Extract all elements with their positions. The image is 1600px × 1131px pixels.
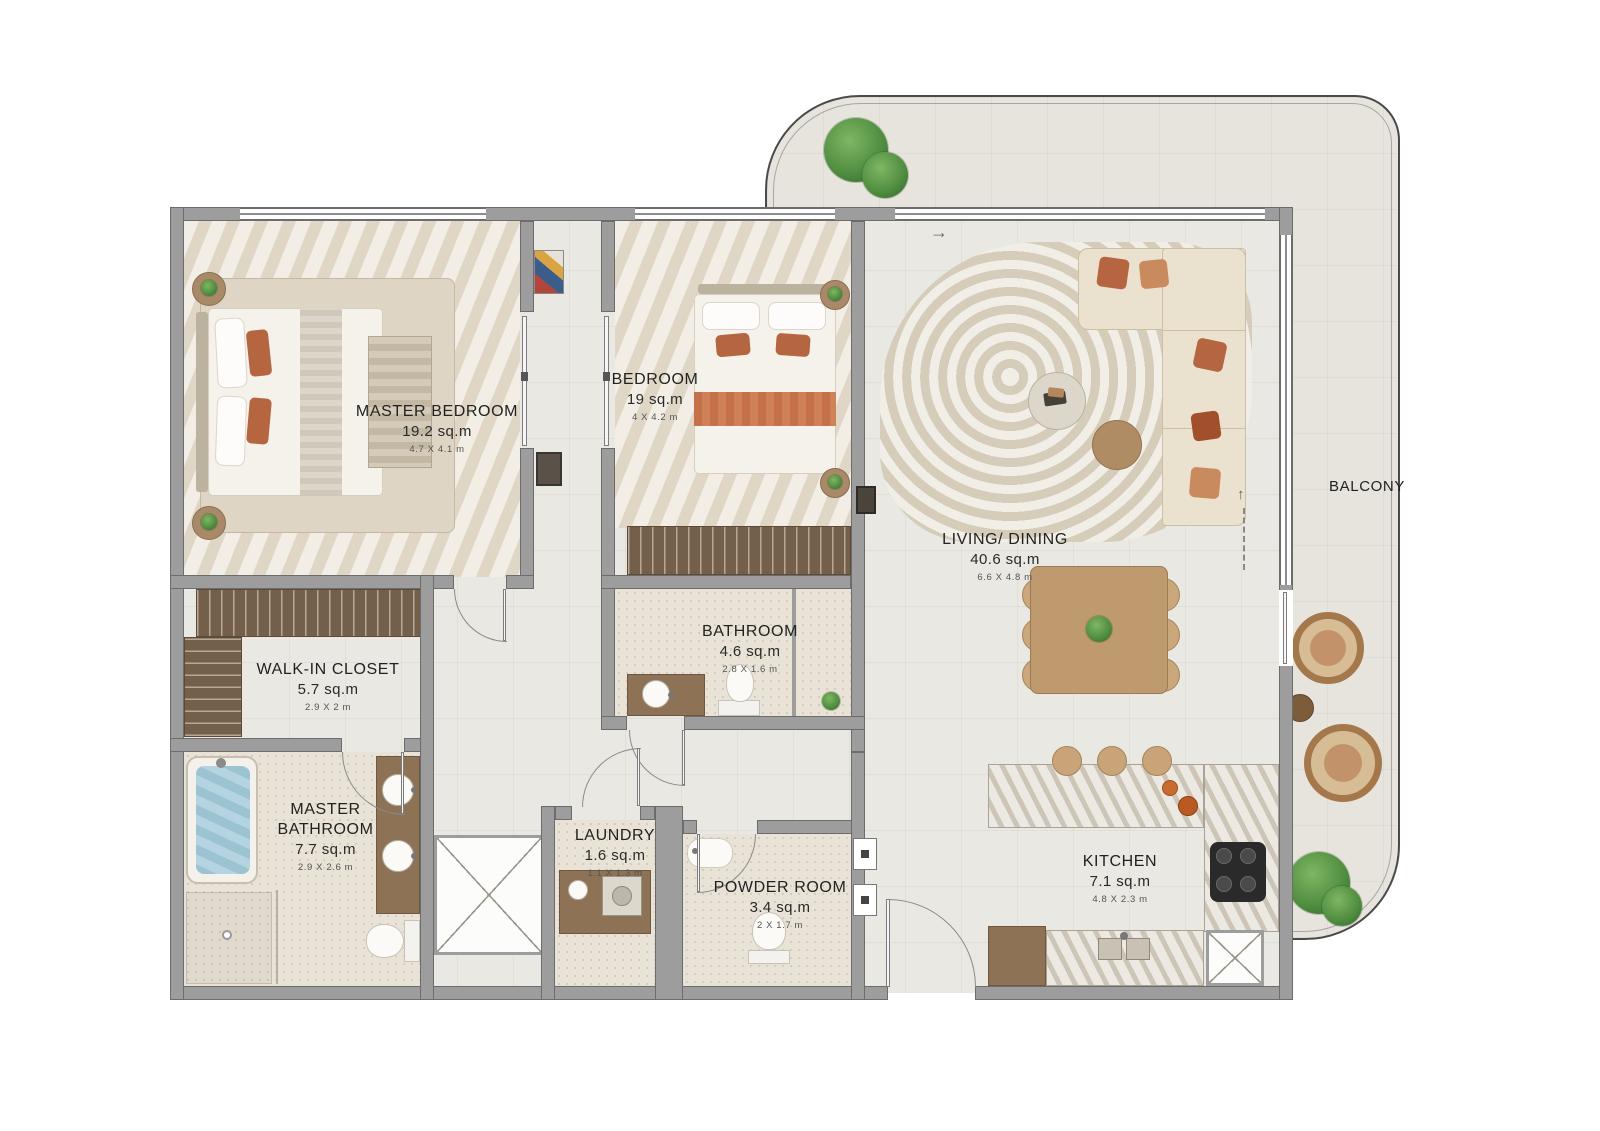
accent-pillow — [246, 397, 272, 445]
toilet-tank — [404, 920, 420, 962]
side-table — [1092, 420, 1142, 470]
pillow — [768, 302, 826, 330]
kitchen-island — [988, 764, 1204, 828]
wall-art — [536, 452, 562, 486]
plant — [862, 152, 908, 198]
door-leaf — [637, 748, 640, 806]
window — [1279, 235, 1293, 585]
wall-segment — [506, 575, 534, 589]
closet-wardrobe — [196, 589, 422, 637]
bathtub-water — [196, 766, 250, 874]
wall-segment — [601, 575, 851, 589]
wall-art — [856, 486, 876, 514]
service-shaft — [1206, 930, 1264, 986]
bed-headboard — [698, 284, 832, 294]
toilet-tank — [748, 950, 790, 964]
chair-cushion — [1324, 744, 1362, 782]
accent-pillow — [1190, 410, 1222, 442]
faucet — [1120, 932, 1128, 940]
wall-segment — [757, 820, 865, 834]
sliding-door — [522, 316, 527, 446]
bar-stool — [1097, 746, 1127, 776]
fruit-bowl — [1178, 796, 1198, 816]
toilet-bowl — [752, 912, 786, 950]
sink — [642, 680, 670, 708]
wall-segment — [684, 716, 865, 730]
burner — [1240, 876, 1256, 892]
floor-plan: → ↑ MASTER BEDROOM 19.2 sq.m 4.7 X 4.1 m… — [0, 0, 1600, 1131]
accent-pillow — [1139, 259, 1170, 290]
window — [240, 207, 486, 221]
plant — [822, 692, 840, 710]
burner — [1240, 848, 1256, 864]
wall-segment — [520, 448, 534, 589]
wall-segment — [170, 986, 888, 1000]
plant — [1086, 616, 1112, 642]
coffee-table-books — [1048, 387, 1065, 398]
door-leaf — [682, 730, 685, 785]
utility-panel-mark — [861, 896, 869, 904]
wall-segment — [601, 716, 627, 730]
wall-segment — [541, 806, 555, 1000]
kitchen-cabinet — [988, 926, 1046, 986]
plant — [828, 475, 842, 489]
accent-pillow — [1096, 256, 1130, 290]
entry-door-leaf — [886, 899, 890, 987]
faucet — [216, 758, 226, 768]
sliding-door — [604, 316, 609, 446]
wall-segment — [555, 806, 572, 820]
burner — [1216, 876, 1232, 892]
wall-segment — [601, 448, 615, 730]
service-shaft — [434, 835, 544, 955]
door-leaf — [401, 752, 404, 814]
utility-panel-mark — [861, 850, 869, 858]
pillow — [702, 302, 760, 330]
wardrobe — [627, 526, 851, 575]
wall-segment — [655, 806, 683, 1000]
pillow — [215, 395, 247, 466]
kitchen-sink — [1126, 938, 1150, 960]
faucet — [668, 692, 674, 698]
accent-pillow — [775, 333, 810, 357]
burner — [1216, 848, 1232, 864]
wall-segment — [601, 221, 615, 312]
door-handle — [603, 372, 610, 381]
toilet-bowl — [366, 924, 404, 958]
door-leaf — [503, 589, 506, 641]
door-leaf — [697, 834, 700, 892]
wall-segment — [170, 575, 454, 589]
bed-throw — [694, 392, 836, 426]
pillow — [214, 317, 248, 388]
bed-headboard — [196, 312, 208, 492]
bed-throw — [300, 308, 342, 496]
sliding-door — [1283, 592, 1287, 664]
wall-segment — [640, 806, 655, 820]
window — [635, 207, 835, 221]
laundry-sink — [568, 880, 588, 900]
wall-segment — [975, 986, 1293, 1000]
faucet — [411, 787, 417, 793]
bathroom-partition — [792, 589, 796, 716]
toilet-bowl — [726, 664, 754, 702]
wall-segment — [520, 221, 534, 312]
accent-pillow — [1192, 337, 1228, 373]
washer-drum — [612, 886, 632, 906]
closet-wardrobe — [184, 637, 242, 737]
bedroom-bench — [368, 336, 432, 468]
bar-stool — [1142, 746, 1172, 776]
shower-glass — [276, 890, 278, 984]
faucet — [411, 853, 417, 859]
accent-pillow — [246, 329, 273, 377]
sofa-cushion-line — [1162, 330, 1246, 331]
door-handle — [521, 372, 528, 381]
window — [895, 207, 1265, 221]
toilet-tank — [718, 700, 760, 716]
wall-art — [534, 250, 564, 294]
accent-pillow — [715, 333, 751, 358]
wall-segment — [170, 207, 184, 1000]
kitchen-sink — [1098, 938, 1122, 960]
accent-pillow — [1189, 467, 1222, 500]
plant — [1322, 886, 1362, 926]
shower-drain — [222, 930, 232, 940]
plant — [828, 287, 842, 301]
wall-segment — [851, 752, 865, 1000]
sink — [382, 840, 414, 872]
bar-stool — [1052, 746, 1082, 776]
wall-segment — [170, 738, 342, 752]
wall-segment — [420, 575, 434, 1000]
wall-segment — [683, 820, 697, 834]
chair-cushion — [1310, 630, 1346, 666]
plant — [201, 514, 217, 530]
plant — [201, 280, 217, 296]
fruit-bowl — [1162, 780, 1178, 796]
